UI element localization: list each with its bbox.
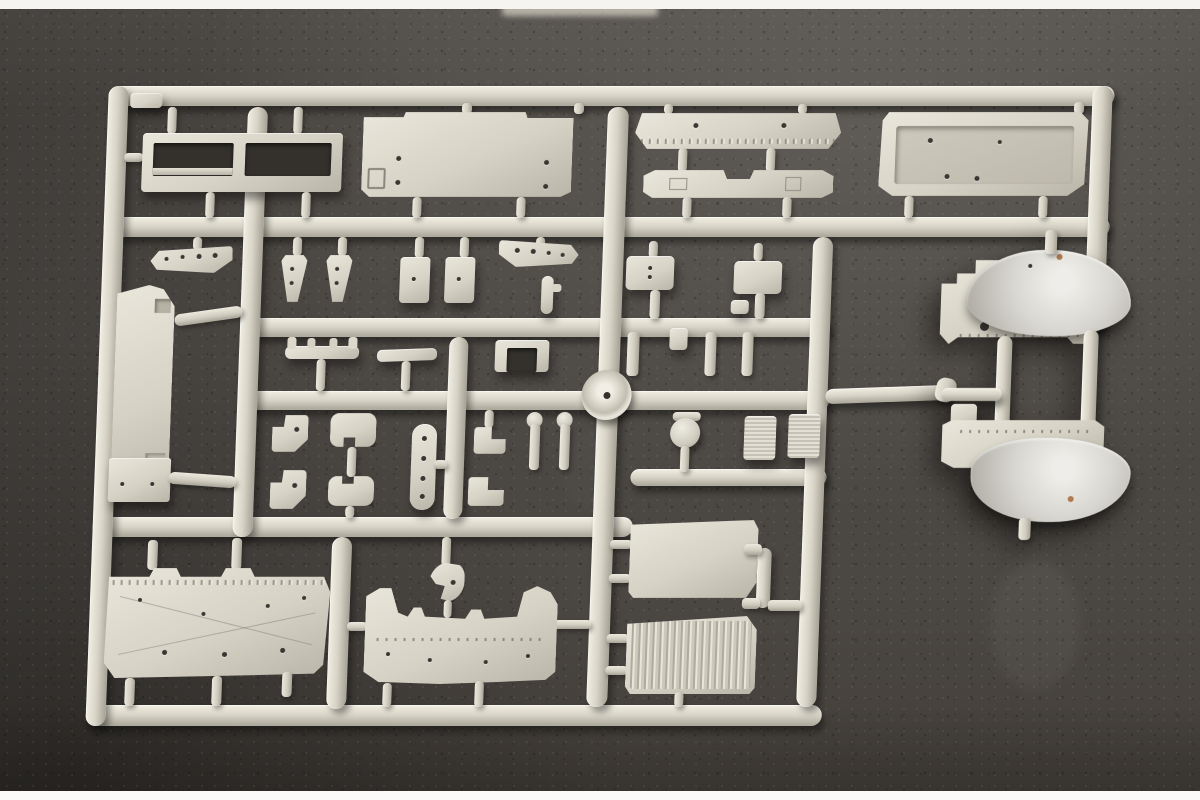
pedal-hook: [271, 415, 308, 452]
wedge-clip: [325, 255, 353, 302]
rivet-hole: [302, 596, 306, 600]
u-bracket: [494, 340, 549, 372]
mirror-ball: [670, 418, 701, 448]
rivet-hole: [547, 251, 551, 255]
step-angle: [467, 477, 504, 506]
tray-recess: [894, 126, 1074, 184]
rivet-hole: [544, 160, 549, 165]
sprue-gate-pin: [441, 537, 451, 566]
frame-crossbar: [153, 168, 233, 175]
rivet-hole: [396, 156, 401, 161]
strap-hole: [420, 476, 425, 481]
cab-firewall-panel: [363, 582, 559, 684]
spring-seat: [330, 413, 377, 447]
rivet-hole: [290, 267, 294, 271]
strap-hole: [422, 436, 427, 441]
rivet-hole: [150, 482, 154, 486]
equipment-box: [625, 256, 674, 290]
sprue-gate-pin: [167, 107, 177, 134]
sprue-gate-pin: [211, 676, 222, 706]
sprue-gate-pin: [434, 460, 447, 469]
fender-runner: [941, 388, 1001, 401]
sprue-gate-pin: [147, 540, 158, 570]
front-bumper: [635, 113, 842, 149]
window-opening: [245, 143, 332, 176]
hub-boss: [581, 370, 633, 420]
sprue-gate-pin: [338, 237, 348, 256]
radiator-grille-upper: [628, 520, 759, 598]
rivet-hole: [412, 277, 416, 281]
rivet-hole: [1028, 264, 1032, 268]
sprue-gate-pin: [682, 197, 692, 218]
sprue-gate-pin: [664, 104, 673, 114]
sprue-gate-pin: [293, 107, 303, 134]
rivet-strip: [641, 139, 835, 144]
sprue-gate-pin: [412, 197, 422, 218]
sprue-gate-pin: [301, 192, 311, 218]
runner-top: [108, 86, 1115, 106]
sprue-tree: [0, 0, 1200, 800]
pedal-hook: [269, 470, 306, 509]
rivet-hole: [290, 281, 294, 285]
stem-nub: [551, 284, 561, 292]
sprue-gate-pin: [605, 666, 627, 675]
rivet-hole: [181, 255, 185, 259]
small-block: [669, 328, 688, 350]
sprue-gate-pin: [798, 104, 807, 114]
sprue-gate-pin: [766, 148, 776, 172]
sprue-stub: [1045, 230, 1058, 254]
runner-h4b: [630, 469, 827, 486]
sprue-gate-pin: [347, 447, 357, 477]
knurled-box: [787, 414, 821, 458]
rivet-hole: [531, 249, 536, 254]
beam-runner-arm: [174, 305, 243, 326]
letterbox-strip-top: [0, 0, 1200, 9]
runner-to-fender: [825, 385, 949, 404]
spring-seat: [327, 476, 374, 506]
crescent-hook: [428, 562, 465, 602]
sprue-gate-pin: [606, 634, 628, 643]
sprue-gate-pin: [680, 446, 690, 472]
sprue-gate-pin: [1038, 196, 1048, 218]
beam-foot: [108, 458, 172, 502]
model-kit-sprue-photo: [0, 0, 1200, 800]
rivet-hole: [648, 275, 652, 279]
valance-mark: [669, 178, 687, 190]
rivet-hole: [164, 257, 168, 261]
wedge-clip: [280, 255, 308, 302]
copper-speck: [1068, 496, 1074, 502]
rivet-hole: [648, 266, 652, 270]
cab-rear-tray: [878, 112, 1089, 196]
rivet-hole: [526, 654, 530, 658]
crease-line: [118, 612, 315, 655]
handle-end: [348, 337, 357, 349]
letterbox-strip-bottom: [0, 791, 1200, 800]
grab-handle: [285, 346, 359, 359]
sprue-gate-pin: [516, 197, 526, 218]
rivet-hole: [201, 612, 205, 616]
sprue-gate-pin: [678, 148, 688, 172]
step-angle: [473, 427, 506, 454]
rivet-hole: [294, 427, 299, 432]
sprue-gate-pin: [744, 544, 762, 555]
sprue-gate-pin: [124, 678, 135, 706]
sprue-gate-pin: [768, 600, 802, 611]
strap-hole: [421, 456, 426, 461]
crease-line: [120, 596, 313, 645]
sprue-gate-pin: [345, 506, 354, 518]
sprue-gate-pin: [316, 359, 326, 391]
perforated-strap: [409, 424, 437, 510]
grille-ribs: [633, 525, 753, 593]
rivet-hole: [335, 267, 339, 271]
grille-ribs: [630, 621, 752, 689]
bracket-opening: [506, 348, 537, 372]
strap-hole: [420, 494, 425, 499]
hub-center-hole: [603, 392, 610, 399]
rivet-hole: [386, 652, 390, 656]
mount-block: [399, 257, 431, 303]
radiator-grille-lower: [625, 616, 758, 694]
rivet-hole: [162, 650, 167, 655]
sprue-gate-pin: [754, 293, 765, 319]
sprue-gate-pin: [574, 103, 584, 114]
beam-runner-arm: [168, 472, 237, 489]
pin-part: [704, 332, 717, 376]
rivet-hole: [781, 123, 786, 128]
handle-hook: [307, 338, 315, 348]
frame-tab: [130, 93, 163, 108]
sprue-gate-pin: [782, 197, 792, 218]
knob-pin: [529, 424, 541, 470]
sprue-gate-pin: [382, 683, 392, 707]
knob-pin: [559, 424, 571, 470]
knob-stem: [540, 276, 553, 314]
runner-h4: [247, 391, 830, 410]
rivet-hole: [335, 281, 339, 285]
knurled-box: [743, 416, 777, 460]
sprue-gate-pin: [474, 681, 484, 707]
mount-block: [444, 257, 476, 303]
sprue-gate-pin: [484, 410, 494, 428]
beam-notch: [155, 299, 172, 313]
sprue-gate-pin: [347, 622, 367, 631]
sprue-gate-pin: [904, 196, 914, 218]
sprue-gate-pin: [415, 237, 425, 258]
sprue-gate-pin: [609, 574, 631, 583]
sprue-gate-pin: [281, 672, 292, 697]
sprue-gate-pin: [742, 598, 760, 609]
rivet-hole: [280, 648, 285, 653]
rivet-hole: [197, 254, 202, 259]
sprue-gate-pin: [293, 237, 303, 256]
linkage-blade: [377, 348, 437, 362]
rivet-strip: [113, 580, 325, 585]
equipment-box: [733, 261, 782, 294]
handle-hook: [329, 338, 337, 348]
sprue-gate-pin: [193, 237, 202, 250]
rivet-dots: [960, 430, 1090, 433]
hook-hole: [451, 580, 456, 585]
rivet-hole: [428, 658, 432, 662]
sprue-stub: [1018, 518, 1031, 540]
rivet-hole: [266, 604, 270, 608]
pin-part: [626, 332, 640, 376]
rivet-hole: [484, 660, 488, 664]
rivet-hole: [543, 184, 548, 189]
valance-mark: [785, 177, 802, 191]
runner-bottom: [85, 705, 822, 726]
perforated-bracket-right: [498, 240, 579, 267]
windshield-frame: [141, 133, 343, 192]
sprue-gate-pin: [443, 600, 452, 618]
rivet-hole: [120, 482, 124, 486]
sprue-gate-pin: [553, 620, 591, 629]
sprue-gate-pin: [401, 361, 411, 391]
rivet-dots: [376, 638, 544, 641]
copper-speck: [1056, 254, 1062, 260]
sprue-gate-pin: [205, 192, 215, 218]
runner-v4: [443, 337, 469, 519]
side-tab: [730, 300, 749, 314]
panel-recess: [367, 168, 386, 189]
runner-h5: [92, 517, 633, 537]
sprue-gate-pin: [649, 290, 660, 319]
rivet-hole: [693, 123, 698, 128]
lower-valance-bar: [643, 170, 834, 198]
sprue-gate-pin: [674, 692, 684, 707]
handle-end: [287, 337, 296, 349]
perforated-bracket-left: [150, 246, 233, 273]
rivet-hole: [213, 253, 218, 258]
sprue-gate-pin: [610, 540, 632, 549]
sprue-gate-pin: [124, 153, 143, 162]
rivet-hole: [457, 277, 461, 281]
sprue-gate-pin: [460, 237, 470, 258]
roof-deck-panel: [103, 568, 331, 678]
sprue-gate-pin: [753, 243, 763, 261]
rivet-hole: [515, 248, 520, 253]
rivet-hole: [292, 483, 297, 488]
sprue-gate-pin: [231, 538, 242, 570]
rivet-hole: [222, 652, 227, 657]
cab-roof-panel: [361, 112, 574, 197]
rivet-hole: [561, 253, 565, 257]
pin-part: [741, 332, 754, 376]
rivet-hole: [395, 180, 400, 185]
fender-dome-rear: [969, 438, 1132, 522]
